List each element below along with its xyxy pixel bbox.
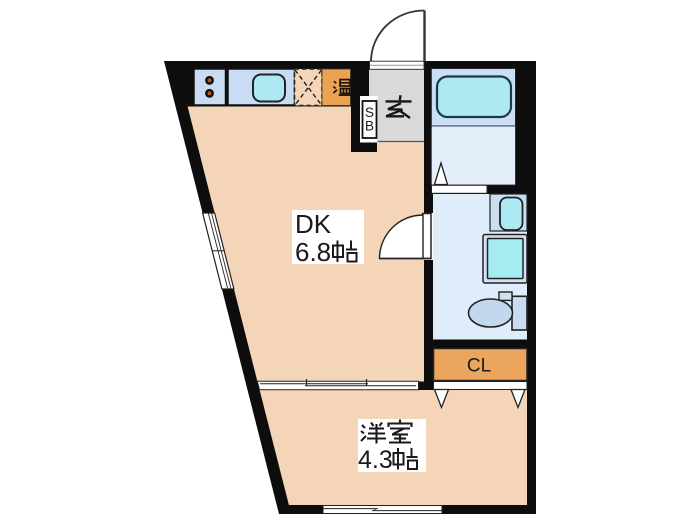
svg-text:4.3: 4.3 (358, 446, 393, 474)
svg-text:6.8: 6.8 (295, 237, 331, 267)
svg-text:DK: DK (295, 209, 332, 239)
svg-text:B: B (365, 119, 374, 134)
svg-text:CL: CL (467, 356, 491, 377)
